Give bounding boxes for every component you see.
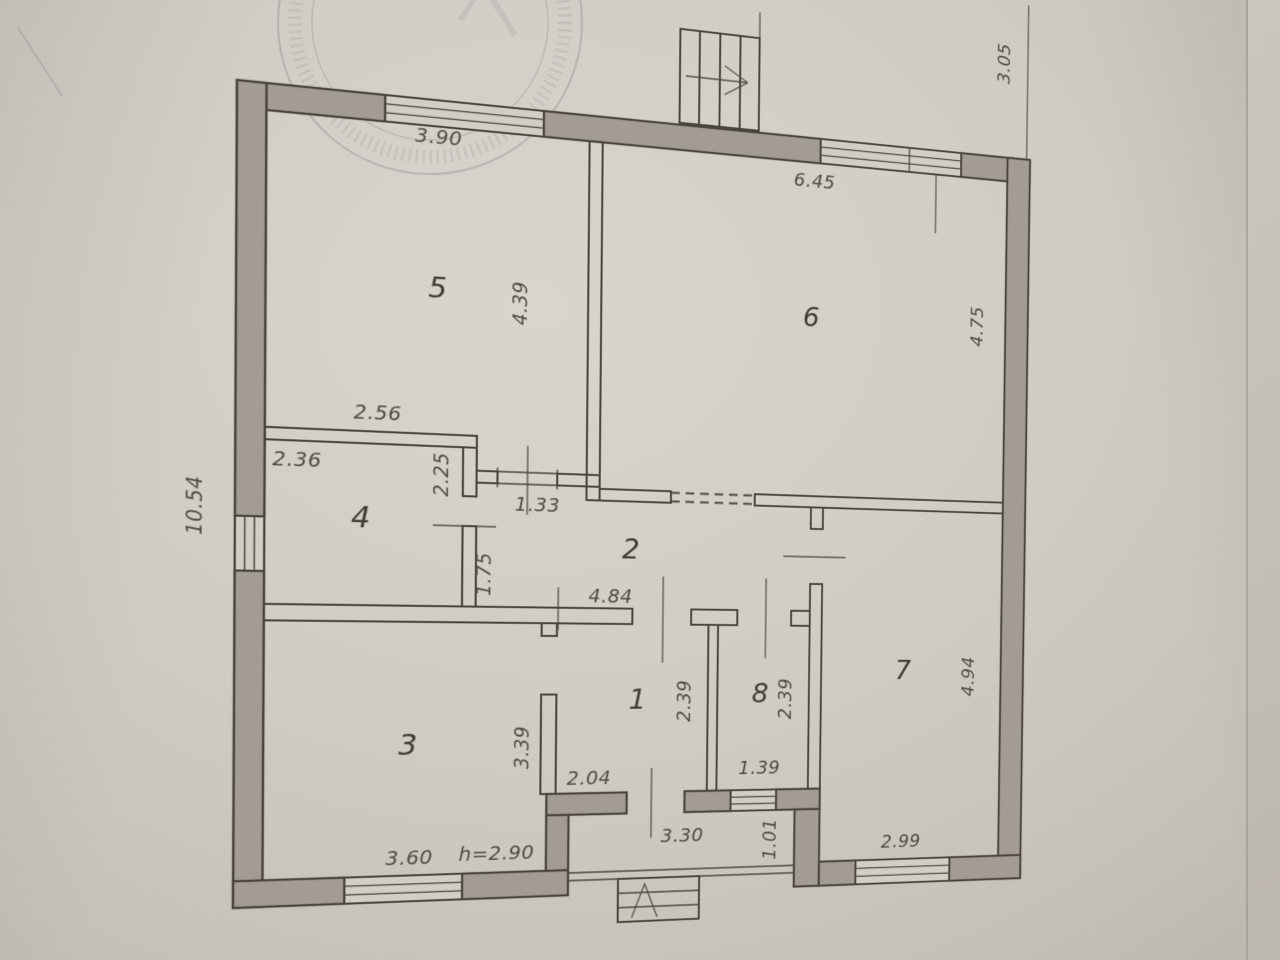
- dim-depth-room8: 2.39: [775, 678, 796, 719]
- room-2-label: 2: [622, 533, 640, 566]
- room-1-label: 1: [629, 683, 647, 715]
- dim-width-room8: 1.39: [738, 758, 780, 779]
- dim-width-room1: 2.04: [567, 768, 612, 790]
- wall-corridor-room7: [811, 507, 823, 529]
- floor-plan-drawing: 1 2 3 4 5 6 7 8 3.90 6.45 3.05 4.75 4.39…: [164, 0, 1066, 960]
- room-8-label: 8: [752, 678, 769, 709]
- extension-line: [765, 578, 766, 658]
- dim-entry-wall: 1.01: [760, 818, 781, 860]
- wall-segment-left-upper: [235, 80, 267, 516]
- dim-ceiling-height: h=2.90: [458, 842, 534, 866]
- wall-room5-room6: [586, 141, 602, 500]
- stair-direction-arrow-icon: [686, 61, 748, 97]
- opening-jambs-room6: [671, 491, 755, 505]
- dim-window-room6: 6.45: [794, 170, 836, 195]
- steps-outline: [618, 876, 700, 922]
- window-room6-top: [821, 139, 962, 177]
- extension-line: [651, 768, 652, 838]
- room-7-label: 7: [895, 655, 911, 686]
- wall-room6-corridor: [600, 489, 671, 503]
- door-opening-vestibule: [627, 791, 685, 813]
- entry-arrow-up-icon: [632, 883, 658, 917]
- dim-window-room7: 2.99: [881, 831, 921, 852]
- dim-side-total: 10.54: [182, 475, 208, 535]
- vestibule-wall: [776, 789, 820, 810]
- room-3-label: 3: [398, 728, 417, 762]
- wall-corridor-bottom: [691, 609, 737, 625]
- dim-depth-room3: 3.39: [511, 726, 534, 770]
- room-4-label: 4: [351, 500, 371, 534]
- wall-segment-bottom: [462, 870, 568, 899]
- dim-entry-width: 3.30: [661, 825, 704, 847]
- wall-segment-right: [998, 158, 1030, 879]
- extension-line-top-right: [1027, 5, 1029, 159]
- dim-width-room4: 2.36: [272, 448, 322, 472]
- vestibule-wall-right: [794, 809, 820, 887]
- dim-depth-room1: 2.39: [674, 680, 696, 722]
- wall-corridor-bottom: [264, 604, 633, 624]
- wall-segment-bottom: [949, 855, 1020, 881]
- dim-wall-top-room4: 2.56: [354, 401, 402, 425]
- floor-plan-photo: 1 2 3 4 5 6 7 8 3.90 6.45 3.05 4.75 4.39…: [0, 0, 1280, 960]
- wall-segment-bottom: [233, 878, 344, 908]
- dim-width-corridor: 1.75: [473, 552, 496, 596]
- dim-window-room5: 3.90: [415, 125, 462, 152]
- window-room5-top: [385, 95, 544, 137]
- room-5-label: 5: [428, 271, 447, 306]
- window-room3-bottom: [344, 874, 462, 904]
- door-opening-room1: [632, 609, 691, 625]
- dashed-opening-corridor-room6: [671, 493, 755, 504]
- vestibule-wall: [546, 792, 627, 815]
- dim-depth-room5: 4.39: [509, 281, 532, 326]
- room-6-label: 6: [803, 301, 820, 333]
- wall-segment: [544, 111, 821, 163]
- porch-stair-top: [680, 3, 760, 131]
- dim-depth-room4: 2.25: [430, 452, 454, 497]
- steps-treads: [618, 890, 699, 907]
- dim-door-corridor: 1.33: [515, 494, 561, 517]
- wall-segment-left-lower: [233, 570, 264, 908]
- dim-length-corridor: 4.84: [588, 586, 632, 608]
- door-opening-room3: [541, 636, 557, 695]
- wall-corridor-top: [477, 471, 498, 484]
- pen-mark: [18, 28, 62, 96]
- dim-top-offset: 3.05: [995, 42, 1015, 85]
- extension-line: [433, 525, 496, 527]
- wall-room3-room1: [540, 695, 556, 795]
- wall-corridor-top: [557, 474, 600, 487]
- vestibule-bottom-edge: [568, 865, 794, 880]
- wall-segment-bottom: [819, 860, 856, 885]
- dim-depth-room7: 4.94: [959, 656, 979, 696]
- wall-room3-room1: [542, 623, 557, 636]
- paper-edge-strip: [1248, 0, 1280, 960]
- dim-depth-room6: 4.75: [968, 306, 988, 348]
- window-left-wall: [235, 516, 265, 571]
- door-opening-room4: [463, 496, 477, 526]
- wall-room6-room7: [755, 494, 1003, 513]
- window-vestibule: [730, 789, 776, 811]
- entry-steps-bottom: [568, 865, 794, 924]
- vestibule-wall: [684, 790, 730, 812]
- room-numbers: 1 2 3 4 5 6 7 8: [350, 265, 916, 762]
- wall-corridor-bottom: [791, 611, 810, 626]
- door-opening-room8: [737, 610, 791, 626]
- dim-width-room3: 3.60: [385, 847, 432, 870]
- vestibule-wall-left: [546, 815, 569, 871]
- wall-room1-room8: [707, 625, 718, 791]
- extension-line: [935, 175, 936, 234]
- exterior-walls: [233, 80, 1030, 908]
- window-room7-bottom: [855, 857, 949, 884]
- wall-room4-room5: [265, 427, 477, 448]
- wall-room4-right: [463, 447, 477, 496]
- extension-line: [662, 576, 663, 662]
- extension-line: [783, 556, 845, 557]
